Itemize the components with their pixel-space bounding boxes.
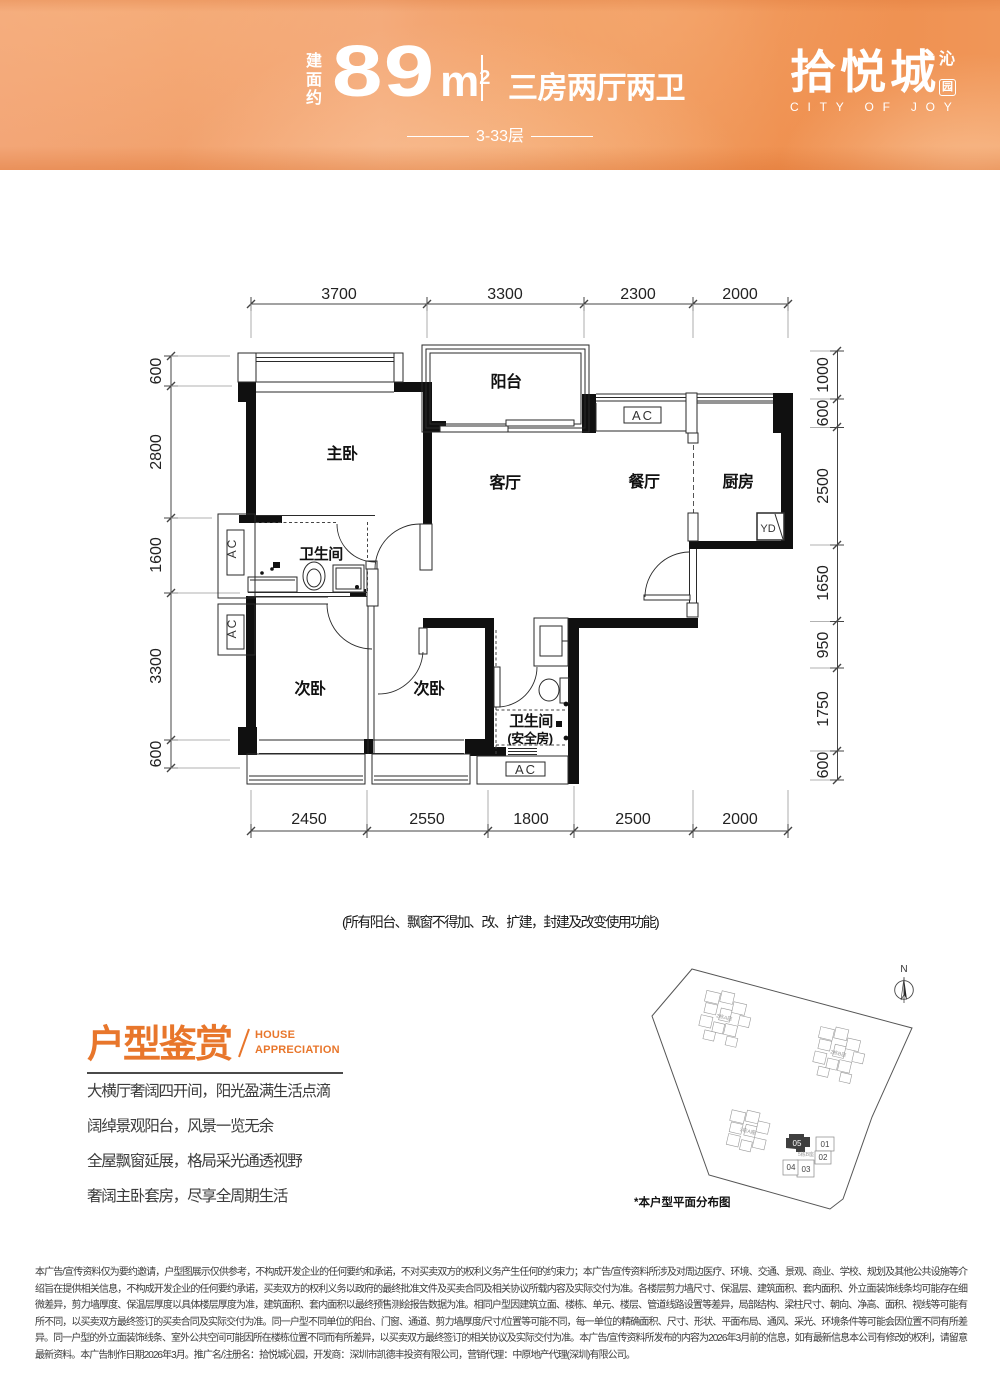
svg-text:2000: 2000 — [722, 286, 758, 303]
svg-text:3300: 3300 — [487, 286, 523, 303]
svg-text:2000: 2000 — [722, 811, 758, 828]
svg-text:YD: YD — [760, 523, 775, 535]
svg-text:03: 03 — [802, 1165, 811, 1174]
svg-text:600: 600 — [148, 741, 165, 768]
svg-text:2500: 2500 — [815, 468, 832, 504]
svg-text:次卧: 次卧 — [413, 679, 445, 698]
svg-text:3300: 3300 — [148, 648, 165, 684]
svg-text:600: 600 — [148, 358, 165, 385]
svg-text:次卧: 次卧 — [294, 679, 326, 698]
svg-text:卫生间: 卫生间 — [509, 712, 553, 730]
svg-text:(安全房): (安全房) — [507, 731, 552, 746]
svg-text:1000: 1000 — [815, 357, 832, 393]
svg-text:2300: 2300 — [620, 286, 656, 303]
svg-text:05: 05 — [793, 1139, 802, 1148]
svg-text:02: 02 — [819, 1153, 828, 1162]
svg-text:AC: AC — [515, 762, 537, 777]
svg-text:卫生间: 卫生间 — [299, 545, 343, 563]
svg-text:5栋B座: 5栋B座 — [798, 1151, 814, 1158]
svg-text:04: 04 — [787, 1163, 796, 1172]
svg-text:N: N — [900, 964, 907, 975]
svg-text:1600: 1600 — [148, 537, 165, 573]
svg-text:*本户型平面分布图: *本户型平面分布图 — [634, 1195, 730, 1209]
svg-text:1750: 1750 — [815, 691, 832, 727]
svg-text:2800: 2800 — [148, 434, 165, 470]
svg-text:2500: 2500 — [615, 811, 651, 828]
svg-text:AC: AC — [632, 408, 654, 423]
svg-text:1650: 1650 — [815, 565, 832, 601]
svg-text:1800: 1800 — [513, 811, 549, 828]
svg-text:AC: AC — [225, 538, 239, 559]
svg-text:厨房: 厨房 — [722, 472, 754, 491]
svg-text:主卧: 主卧 — [326, 444, 358, 463]
svg-text:600: 600 — [815, 400, 832, 427]
svg-text:950: 950 — [815, 632, 832, 659]
svg-text:餐厅: 餐厅 — [627, 472, 660, 491]
svg-text:2550: 2550 — [409, 811, 445, 828]
svg-text:客厅: 客厅 — [489, 473, 521, 492]
svg-text:3700: 3700 — [321, 286, 357, 303]
svg-text:01: 01 — [821, 1140, 830, 1149]
svg-text:阳台: 阳台 — [490, 372, 522, 391]
svg-text:600: 600 — [815, 752, 832, 779]
svg-text:2450: 2450 — [291, 811, 327, 828]
svg-text:AC: AC — [225, 618, 239, 639]
